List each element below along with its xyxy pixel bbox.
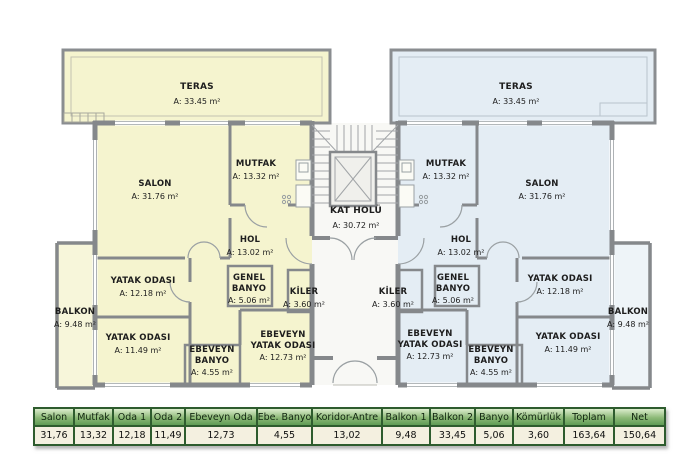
area-table-value-cell: 13,02 <box>313 427 381 444</box>
room-area: A: 4.55 m² <box>189 368 234 377</box>
area-table-header-cell: Ebeveyn Oda <box>186 409 256 427</box>
area-table-header-cell: Mutfak <box>75 409 112 427</box>
area-table-value-cell: 9,48 <box>383 427 429 444</box>
room-label-hol-right: HOL A: 13.02 m² <box>437 235 484 257</box>
area-table-value-cell: 5,06 <box>476 427 512 444</box>
area-table-column: Ebeveyn Oda 12,73 <box>184 409 256 444</box>
elevator-shaft <box>330 152 376 206</box>
room-label-hol-left: HOL A: 13.02 m² <box>226 235 273 257</box>
room-label-yatak2-right: YATAK ODASI A: 11.49 m² <box>536 332 601 354</box>
area-table-value-cell: 3,60 <box>514 427 563 444</box>
area-table-header-cell: Balkon 2 <box>431 409 474 427</box>
room-area: A: 5.06 m² <box>432 296 474 305</box>
room-label-balkon-left: BALKON A: 9.48 m² <box>54 307 96 329</box>
area-table-column: Salon 31,76 <box>35 409 73 444</box>
room-area: A: 12.73 m² <box>251 353 316 362</box>
room-area: A: 9.48 m² <box>54 320 96 329</box>
room-area: A: 9.48 m² <box>607 320 649 329</box>
room-name: BALKON <box>607 307 649 318</box>
area-table-header-cell: Kömürlük <box>514 409 563 427</box>
room-label-mutfak-left: MUTFAK A: 13.32 m² <box>232 159 279 181</box>
room-name: BALKON <box>54 307 96 318</box>
area-table-header-cell: Salon <box>35 409 73 427</box>
room-label-yatak2-left: YATAK ODASI A: 11.49 m² <box>106 333 171 355</box>
room-name: SALON <box>518 179 565 190</box>
room-name: HOL <box>437 235 484 246</box>
area-table-column: Koridor-Antre 13,02 <box>311 409 381 444</box>
area-table-header-cell: Banyo <box>476 409 512 427</box>
room-area: A: 3.60 m² <box>283 300 325 309</box>
room-area: A: 12.18 m² <box>528 287 593 296</box>
area-table-header-cell: Net <box>615 409 664 427</box>
room-area: A: 13.02 m² <box>226 248 273 257</box>
room-name: EBEVEYN BANYO <box>468 345 513 366</box>
area-table-column: Kömürlük 3,60 <box>512 409 563 444</box>
room-label-mutfak-right: MUTFAK A: 13.32 m² <box>422 159 469 181</box>
room-name: YATAK ODASI <box>106 333 171 344</box>
area-table-header-cell: Balkon 1 <box>383 409 429 427</box>
area-table-value-cell: 13,32 <box>75 427 112 444</box>
room-name: GENEL BANYO <box>228 273 270 294</box>
room-label-ebeveyn-banyo-right: EBEVEYN BANYO A: 4.55 m² <box>468 345 513 377</box>
room-name: MUTFAK <box>422 159 469 170</box>
area-table-value-cell: 31,76 <box>35 427 73 444</box>
area-table-value-cell: 33,45 <box>431 427 474 444</box>
room-area: A: 11.49 m² <box>536 345 601 354</box>
room-label-kat-holu: KAT HOLÜ A: 30.72 m² <box>330 206 382 230</box>
room-label-ebeveyn-yatak-left: EBEVEYN YATAK ODASI A: 12.73 m² <box>251 330 316 362</box>
room-label-kiler-left: KİLER A: 3.60 m² <box>283 287 325 309</box>
room-label-genel-banyo-left: GENEL BANYO A: 5.06 m² <box>228 273 270 305</box>
room-area: A: 31.76 m² <box>131 192 178 201</box>
area-table-value-cell: 12,18 <box>114 427 150 444</box>
room-name: YATAK ODASI <box>111 276 176 287</box>
room-label-yatak1-right: YATAK ODASI A: 12.18 m² <box>528 274 593 296</box>
room-label-kiler-right: KİLER A: 3.60 m² <box>372 287 414 309</box>
room-area: A: 12.73 m² <box>398 352 463 361</box>
area-table-value-cell: 11,49 <box>152 427 184 444</box>
room-name: TERAS <box>492 82 539 93</box>
room-area: A: 13.32 m² <box>422 172 469 181</box>
area-table-column: Banyo 5,06 <box>474 409 512 444</box>
room-label-genel-banyo-right: GENEL BANYO A: 5.06 m² <box>432 273 474 305</box>
area-table-column: Balkon 1 9,48 <box>381 409 429 444</box>
area-table-column: Net 150,64 <box>613 409 664 444</box>
area-table-value-cell: 12,73 <box>186 427 256 444</box>
room-label-balkon-right: BALKON A: 9.48 m² <box>607 307 649 329</box>
room-label-ebeveyn-yatak-right: EBEVEYN YATAK ODASI A: 12.73 m² <box>398 329 463 361</box>
room-area: A: 13.32 m² <box>232 172 279 181</box>
room-name: YATAK ODASI <box>536 332 601 343</box>
room-area: A: 33.45 m² <box>492 97 539 106</box>
room-label-yatak1-left: YATAK ODASI A: 12.18 m² <box>111 276 176 298</box>
room-label-salon-left: SALON A: 31.76 m² <box>131 179 178 201</box>
room-name: KİLER <box>372 287 414 298</box>
area-table-header-cell: Oda 2 <box>152 409 184 427</box>
room-name: EBEVEYN YATAK ODASI <box>251 330 316 351</box>
area-table-header-cell: Koridor-Antre <box>313 409 381 427</box>
room-label-teras-right: TERAS A: 33.45 m² <box>492 82 539 106</box>
room-name: EBEVEYN BANYO <box>189 345 234 366</box>
area-table-column: Balkon 2 33,45 <box>429 409 474 444</box>
area-table-header-cell: Oda 1 <box>114 409 150 427</box>
room-name: TERAS <box>173 82 220 93</box>
area-table: Salon 31,76 Mutfak 13,32 Oda 1 12,18 Oda… <box>33 407 666 446</box>
room-label-teras-left: TERAS A: 33.45 m² <box>173 82 220 106</box>
room-name: GENEL BANYO <box>432 273 474 294</box>
room-area: A: 12.18 m² <box>111 289 176 298</box>
room-label-salon-right: SALON A: 31.76 m² <box>518 179 565 201</box>
room-name: MUTFAK <box>232 159 279 170</box>
area-table-header-cell: Toplam <box>565 409 613 427</box>
room-area: A: 30.72 m² <box>330 221 382 230</box>
room-area: A: 11.49 m² <box>106 346 171 355</box>
floor-plan-drawing <box>0 0 700 466</box>
area-table-column: Toplam 163,64 <box>563 409 613 444</box>
area-table-value-cell: 150,64 <box>615 427 664 444</box>
room-area: A: 31.76 m² <box>518 192 565 201</box>
area-table-column: Oda 1 12,18 <box>112 409 150 444</box>
area-table-column: Oda 2 11,49 <box>150 409 184 444</box>
room-name: YATAK ODASI <box>528 274 593 285</box>
room-area: A: 13.02 m² <box>437 248 484 257</box>
room-area: A: 5.06 m² <box>228 296 270 305</box>
room-area: A: 3.60 m² <box>372 300 414 309</box>
floor-plan-page: TERAS A: 33.45 m² SALON A: 31.76 m² MUTF… <box>0 0 700 466</box>
area-table-value-cell: 163,64 <box>565 427 613 444</box>
room-name: EBEVEYN YATAK ODASI <box>398 329 463 350</box>
room-label-ebeveyn-banyo-left: EBEVEYN BANYO A: 4.55 m² <box>189 345 234 377</box>
area-table-column: Ebe. Banyo 4,55 <box>256 409 311 444</box>
room-area: A: 4.55 m² <box>468 368 513 377</box>
room-name: SALON <box>131 179 178 190</box>
room-name: KİLER <box>283 287 325 298</box>
room-area: A: 33.45 m² <box>173 97 220 106</box>
room-name: KAT HOLÜ <box>330 206 382 217</box>
area-table-column: Mutfak 13,32 <box>73 409 112 444</box>
room-name: HOL <box>226 235 273 246</box>
area-table-header-cell: Ebe. Banyo <box>258 409 311 427</box>
area-table-value-cell: 4,55 <box>258 427 311 444</box>
